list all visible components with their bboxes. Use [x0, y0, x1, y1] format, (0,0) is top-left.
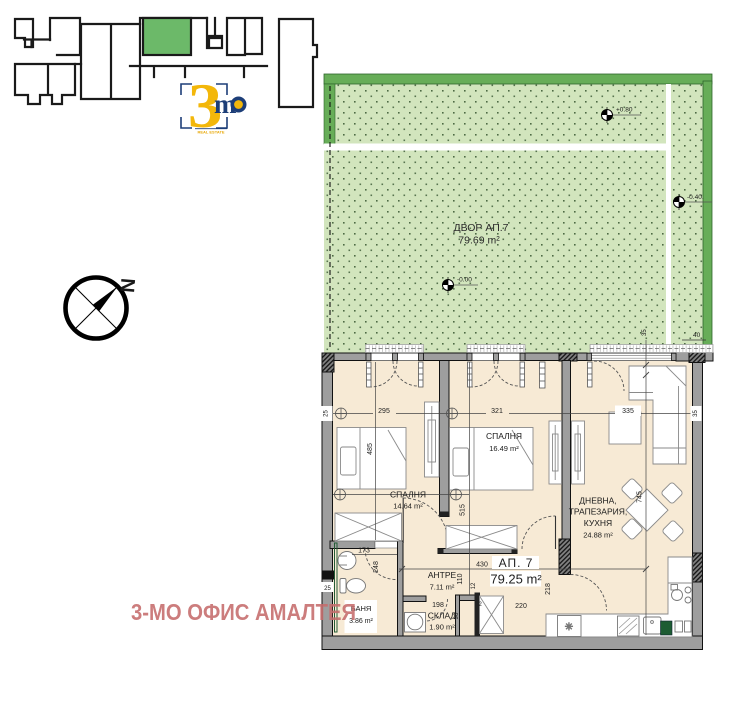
svg-text:АП. 7: АП. 7: [499, 556, 534, 570]
svg-text:24.88 m²: 24.88 m²: [583, 531, 613, 540]
svg-text:485: 485: [367, 443, 374, 455]
svg-text:ТРАПЕЗАРИЯ,: ТРАПЕЗАРИЯ,: [569, 507, 628, 517]
svg-text:+0.80: +0.80: [616, 107, 633, 114]
svg-text:REAL ESTATE: REAL ESTATE: [197, 130, 224, 135]
svg-text:3-МО ОФИС АМАЛТЕЯ: 3-МО ОФИС АМАЛТЕЯ: [131, 599, 356, 625]
svg-text:218: 218: [545, 583, 552, 595]
svg-text:79.25 m²: 79.25 m²: [490, 572, 542, 587]
svg-text:СКЛАД: СКЛАД: [428, 611, 457, 621]
svg-text:110: 110: [457, 573, 464, 584]
svg-text:12: 12: [471, 582, 477, 589]
svg-text:335: 335: [622, 408, 634, 415]
svg-text:35: 35: [693, 410, 699, 417]
svg-text:N: N: [115, 277, 138, 293]
svg-text:7.11 m²: 7.11 m²: [430, 583, 455, 592]
svg-text:295: 295: [378, 408, 390, 415]
svg-text:КУХНЯ: КУХНЯ: [584, 518, 612, 528]
svg-text:25: 25: [324, 586, 331, 592]
svg-text:АНТРЕ: АНТРЕ: [428, 570, 457, 580]
svg-text:430: 430: [476, 562, 488, 569]
svg-text:СПАЛНЯ: СПАЛНЯ: [390, 490, 426, 500]
svg-text:14.64 m²: 14.64 m²: [393, 502, 423, 511]
svg-text:-0.40.: -0.40.: [687, 194, 704, 201]
svg-text:198: 198: [432, 602, 444, 609]
svg-text:79.69 m²: 79.69 m²: [458, 235, 500, 247]
svg-text:35: 35: [642, 329, 648, 336]
svg-text:248: 248: [373, 561, 380, 573]
svg-text:-0.00: -0.00: [457, 277, 472, 284]
svg-text:1.90 m²: 1.90 m²: [429, 623, 455, 632]
svg-text:ДВОР АП.7: ДВОР АП.7: [453, 222, 508, 234]
svg-text:173: 173: [358, 548, 370, 555]
svg-text:ДНЕВНА,: ДНЕВНА,: [579, 496, 616, 506]
svg-text:321: 321: [491, 408, 503, 415]
svg-text:✳: ✳: [565, 622, 573, 633]
svg-text:515: 515: [460, 504, 467, 516]
svg-text:16.49 m²: 16.49 m²: [489, 444, 519, 453]
svg-text:745: 745: [637, 491, 644, 503]
svg-text:СПАЛНЯ: СПАЛНЯ: [486, 431, 522, 441]
svg-text:25: 25: [324, 410, 330, 417]
svg-text:40: 40: [693, 332, 701, 339]
svg-text:220: 220: [515, 603, 527, 610]
